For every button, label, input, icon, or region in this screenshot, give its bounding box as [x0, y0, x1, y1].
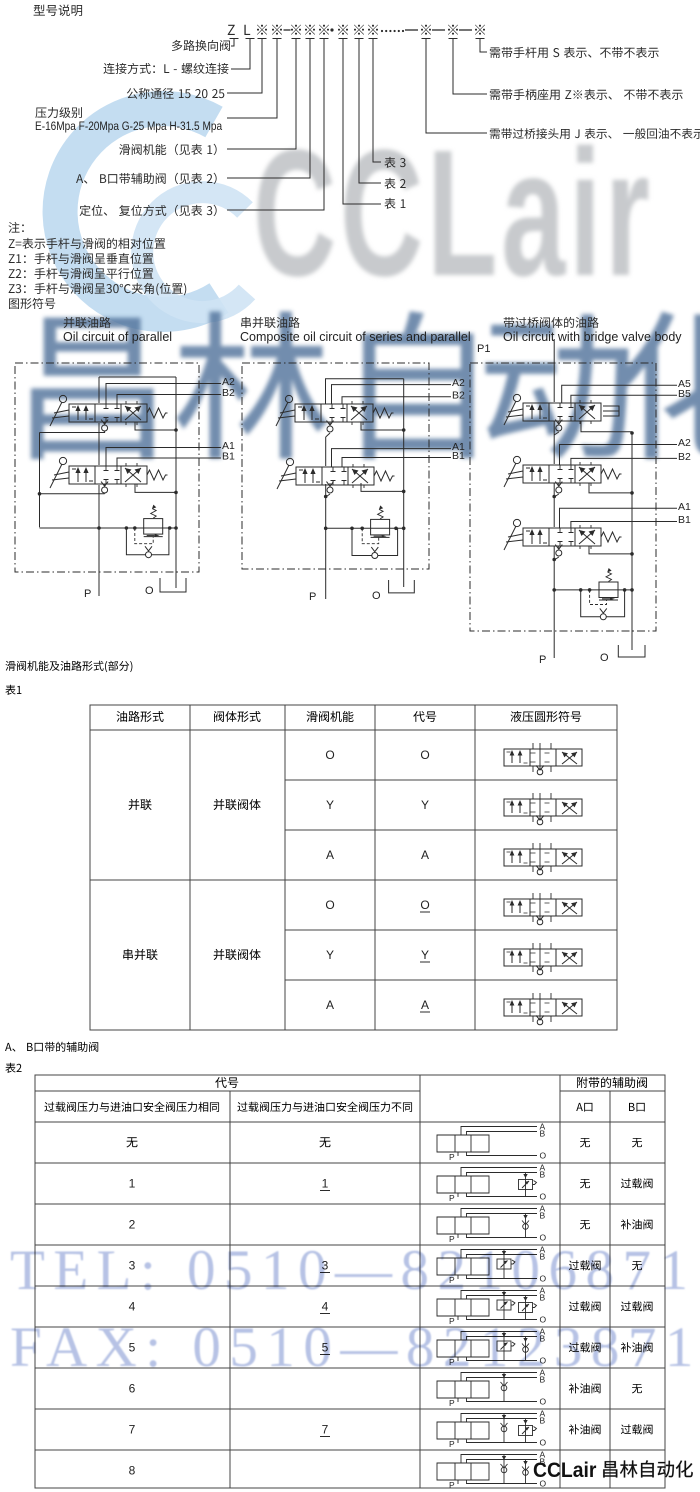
svg-text:O: O [420, 898, 429, 912]
svg-text:A1: A1 [678, 501, 691, 513]
svg-text:O: O [540, 1397, 547, 1407]
svg-text:P: P [539, 654, 546, 666]
svg-text:P: P [309, 591, 316, 603]
svg-text:B: B [540, 1211, 546, 1221]
svg-text:FAX: 0510—82123871: FAX: 0510—82123871 [10, 1316, 700, 1379]
svg-text:A2: A2 [678, 437, 691, 449]
svg-text:P: P [449, 1193, 455, 1203]
svg-text:O: O [372, 590, 381, 602]
svg-text:Composite oil circuit of serie: Composite oil circuit of series and para… [240, 330, 471, 344]
svg-text:O: O [325, 748, 334, 762]
svg-text:B2: B2 [452, 389, 465, 401]
svg-text:O: O [540, 1192, 547, 1202]
svg-text:2: 2 [129, 1218, 136, 1232]
svg-text:A2: A2 [452, 377, 465, 389]
svg-text:B2: B2 [678, 451, 691, 463]
svg-text:O: O [145, 585, 154, 597]
svg-text:O: O [540, 1151, 547, 1161]
svg-text:P: P [449, 1439, 455, 1449]
svg-text:O: O [325, 898, 334, 912]
svg-text:B1: B1 [452, 450, 465, 462]
svg-text:B2: B2 [222, 387, 235, 399]
svg-text:7: 7 [129, 1423, 136, 1437]
svg-text:Y: Y [326, 948, 334, 962]
svg-text:P: P [449, 1398, 455, 1408]
svg-text:O: O [600, 652, 609, 664]
svg-text:P1: P1 [477, 343, 490, 355]
svg-text:6: 6 [129, 1382, 136, 1396]
svg-text:Y: Y [421, 948, 429, 962]
svg-text:P: P [84, 588, 91, 600]
svg-text:O: O [540, 1438, 547, 1448]
svg-text:Y: Y [326, 798, 334, 812]
svg-text:P: P [449, 1152, 455, 1162]
svg-text:B: B [540, 1129, 546, 1139]
svg-text:A: A [326, 998, 334, 1012]
svg-text:7: 7 [322, 1423, 329, 1437]
svg-text:B1: B1 [678, 514, 691, 526]
svg-text:CCLair: CCLair [253, 113, 654, 314]
svg-text:1: 1 [322, 1177, 329, 1191]
svg-text:B: B [540, 1170, 546, 1180]
svg-text:Y: Y [421, 798, 429, 812]
svg-text:A: A [421, 998, 429, 1012]
svg-text:E-16Mpa F-20Mpa G-25 Mpa H-31.: E-16Mpa F-20Mpa G-25 Mpa H-31.5 Mpa [35, 120, 223, 133]
svg-text:B1: B1 [222, 451, 235, 463]
svg-text:Oil circuit with bridge valve: Oil circuit with bridge valve body [503, 330, 682, 344]
svg-text:8: 8 [129, 1464, 136, 1478]
svg-text:B: B [540, 1416, 546, 1426]
svg-text:A: A [326, 848, 334, 862]
svg-text:P: P [449, 1480, 455, 1490]
svg-text:A: A [421, 848, 429, 862]
svg-text:B5: B5 [678, 388, 691, 400]
svg-text:TEL: 0510—82106871: TEL: 0510—82106871 [10, 1239, 697, 1302]
svg-text:1: 1 [129, 1177, 136, 1191]
svg-text:O: O [420, 748, 429, 762]
svg-text:CCLair: CCLair [533, 1458, 596, 1482]
svg-text:Oil circuit of parallel: Oil circuit of parallel [63, 330, 172, 344]
